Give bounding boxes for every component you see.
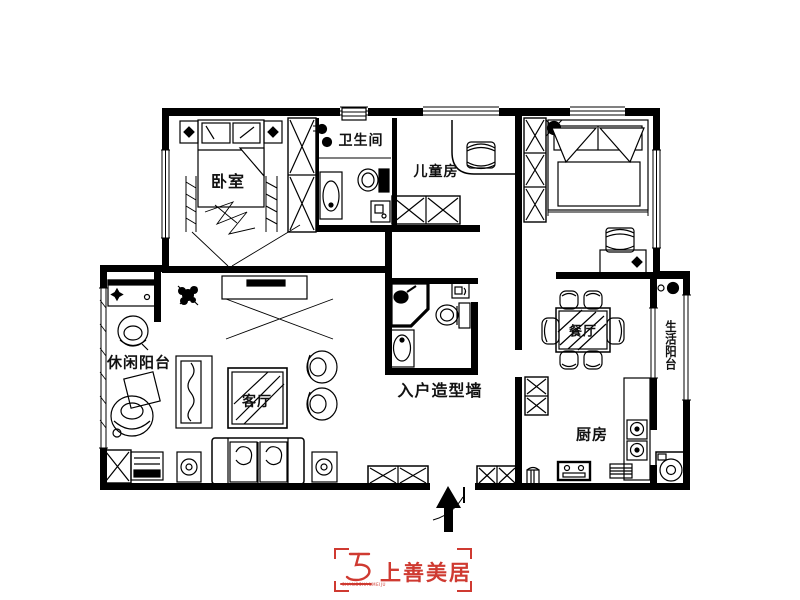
window-top-2	[423, 106, 499, 117]
bathroom1-fixtures	[313, 108, 391, 222]
nightstand-right	[264, 121, 282, 143]
round-chair-2	[111, 396, 153, 437]
wardrobe-bedroom1	[288, 118, 316, 232]
living-room-furniture	[104, 276, 337, 484]
logo-bracket-tl	[334, 548, 349, 559]
vanity-sink	[320, 172, 342, 219]
pedestal-sink	[391, 330, 414, 367]
label-dining-room: 餐厅	[569, 321, 597, 340]
floor-plan-drawing	[0, 0, 800, 600]
sofa	[212, 438, 304, 484]
label-leisure-balcony: 休闲阳台	[107, 352, 171, 373]
bucket	[527, 468, 539, 485]
tv-feature-wall	[222, 276, 333, 339]
armchair-1	[307, 351, 337, 383]
toilet	[358, 169, 389, 192]
bed-master	[548, 120, 648, 216]
washing-machine	[656, 452, 686, 486]
round-chair-1	[118, 316, 148, 350]
window-top-3	[570, 106, 625, 117]
label-entry-wall: 入户造型墙	[397, 377, 482, 401]
wardrobe-bedroom2	[524, 118, 546, 222]
plant-icon	[178, 286, 198, 305]
shoe-cabinet-left	[368, 466, 428, 485]
window-balcony-right	[682, 295, 691, 400]
speaker-right	[312, 452, 337, 482]
dressing-stool	[606, 228, 634, 252]
label-bathroom: 卫生间	[339, 130, 384, 150]
label-service-balcony: 生活阳台	[662, 320, 678, 370]
window-kitchen-balcony	[649, 308, 658, 378]
shower-stall	[391, 283, 428, 326]
window-bedroom-left	[161, 150, 170, 238]
balcony-cabinet	[108, 280, 158, 306]
mop-basin	[371, 201, 390, 222]
water-heater	[452, 283, 469, 298]
nightstand-left	[180, 121, 198, 143]
wardrobe-kids	[392, 196, 460, 224]
label-bedroom: 卧室	[211, 168, 245, 192]
dressing-table	[600, 250, 646, 275]
flue-shaft	[342, 108, 366, 120]
window-bedroom2-right	[652, 150, 661, 248]
logo-title: 上善美居	[380, 557, 472, 587]
bathroom2-fixtures	[391, 283, 470, 367]
desk-chair	[467, 142, 495, 169]
floor-plan-canvas: 卧室 卫生间 儿童房 休闲阳台 客厅 入户造型墙 餐厅 厨房 生活阳台 上善美居…	[0, 0, 800, 600]
double-sink	[627, 420, 647, 460]
bedroom1-furniture	[180, 118, 316, 271]
label-living-room: 客厅	[242, 391, 272, 411]
bedroom2-furniture	[524, 118, 648, 275]
gas-stove	[558, 462, 590, 480]
cutting-board	[610, 464, 632, 478]
armchair-2	[307, 388, 337, 420]
refrigerator	[525, 377, 548, 415]
entrance-arrow-icon	[436, 486, 461, 532]
speaker-left	[177, 452, 201, 482]
logo-small-text: SHANGSHANMEIJU	[342, 582, 378, 587]
brand-logo: 上善美居 SHANGSHANMEIJU	[334, 546, 472, 594]
toilet-2	[436, 303, 470, 328]
label-kitchen: 厨房	[576, 424, 608, 445]
entry-hall	[368, 466, 539, 532]
av-cabinet	[104, 450, 163, 483]
sideboard-bench	[176, 356, 212, 428]
pipe-icon	[668, 283, 679, 294]
service-balcony-items	[656, 283, 686, 487]
tv-projection-lines	[192, 225, 300, 271]
shoe-cabinet-right	[477, 466, 517, 485]
floor-drain-icon	[658, 285, 664, 291]
label-kids-room: 儿童房	[414, 161, 459, 181]
